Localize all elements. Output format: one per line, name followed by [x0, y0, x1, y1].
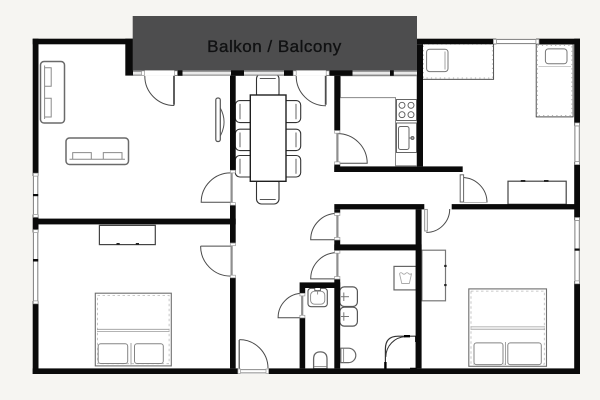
svg-text:Balkon / Balcony: Balkon / Balcony — [207, 37, 342, 56]
